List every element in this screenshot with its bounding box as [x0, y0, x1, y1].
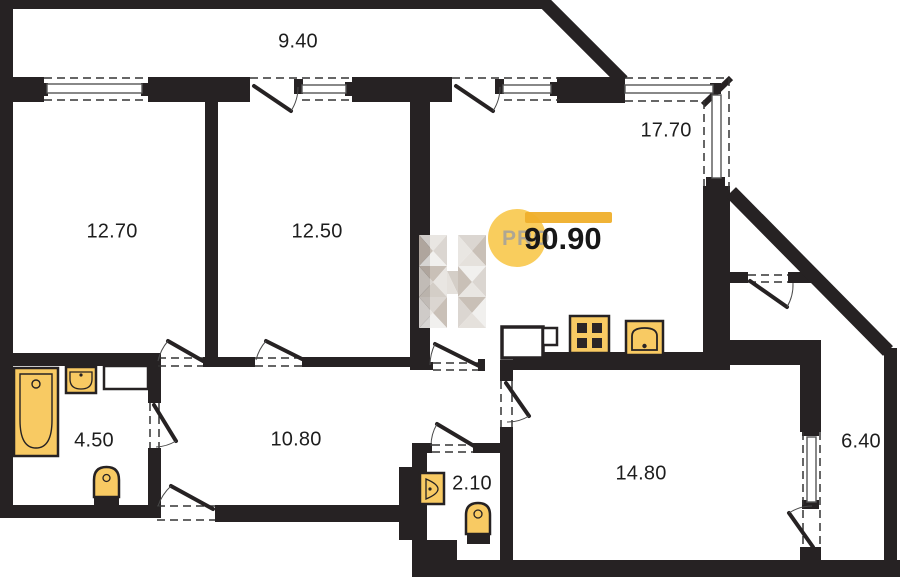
door-kitchen — [506, 383, 529, 416]
area-label-balcony-right: 6.40 — [841, 431, 881, 454]
area-label-balcony-top: 9.40 — [278, 31, 318, 54]
area-label-wc: 2.10 — [452, 473, 492, 496]
bathtub-icon — [14, 368, 58, 456]
total-area-label: 90.90 — [524, 221, 602, 257]
corner-window-vertical — [712, 95, 721, 178]
bathroom-toilet-icon — [94, 467, 119, 508]
bathroom-sink-icon — [66, 367, 96, 393]
bathroom-niche — [104, 366, 148, 389]
floor-plan: 9.40 12.70 12.50 17.70 4.50 10.80 2.10 1… — [0, 0, 900, 577]
watermark-h-icon — [419, 235, 486, 328]
window-bedroom-2 — [302, 85, 346, 93]
area-label-bathroom: 4.50 — [74, 430, 114, 453]
stove-icon — [570, 316, 609, 353]
door-wc — [437, 424, 474, 446]
wc-sink-icon — [420, 473, 444, 504]
area-label-bedroom-1: 12.70 — [86, 221, 137, 244]
area-label-bedroom-2: 12.50 — [291, 221, 342, 244]
area-label-living-room: 17.70 — [640, 120, 691, 143]
window-bedroom-1 — [47, 84, 142, 93]
floor-plan-drawing — [0, 0, 900, 577]
window-living — [503, 85, 551, 93]
door-bedroom-2 — [266, 341, 302, 359]
window-kitchen-balcony — [807, 437, 816, 502]
area-label-kitchen: 14.80 — [615, 463, 666, 486]
door-terrace — [750, 281, 787, 307]
door-balcony-bedroom-2 — [254, 86, 291, 111]
area-label-hallway: 10.80 — [270, 429, 321, 452]
door-balcony-living — [456, 86, 493, 111]
door-bathroom — [154, 405, 176, 441]
wc-toilet-icon — [466, 503, 490, 544]
door-living — [435, 344, 479, 366]
door-balcony-kitchen — [789, 513, 813, 547]
kitchen-sink-icon — [626, 321, 663, 355]
corner-window-horizontal — [625, 85, 713, 93]
